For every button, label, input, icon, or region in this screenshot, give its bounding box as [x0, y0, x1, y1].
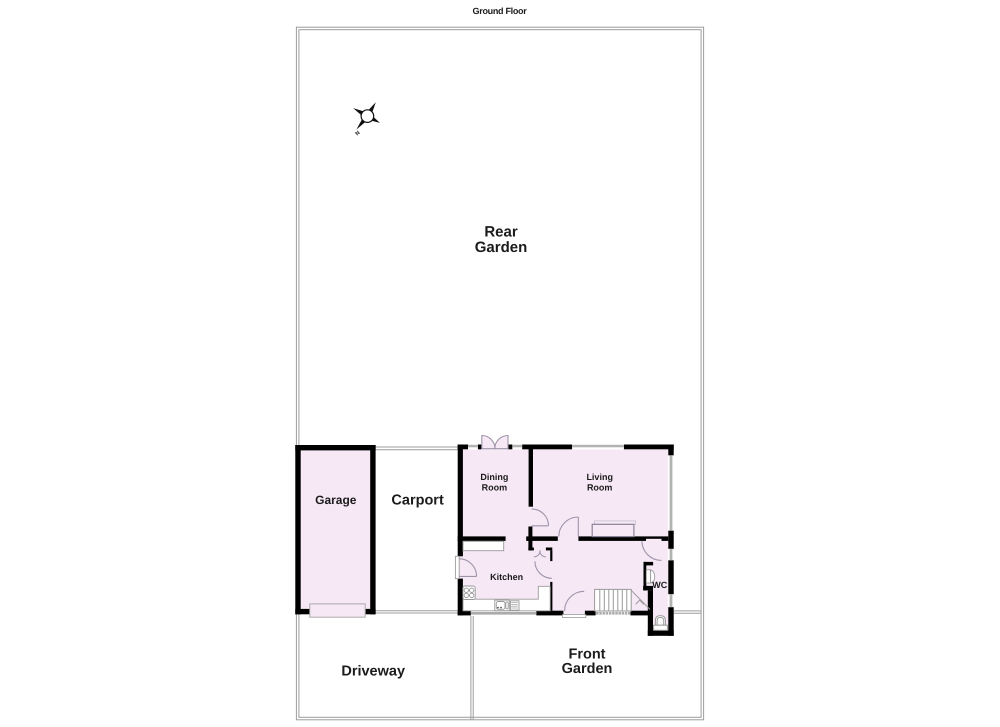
svg-text:Garage: Garage [315, 493, 357, 507]
svg-text:Garden: Garden [562, 661, 613, 677]
svg-text:Kitchen: Kitchen [490, 572, 523, 582]
svg-text:Living: Living [586, 472, 613, 482]
svg-text:WC: WC [652, 580, 667, 590]
svg-text:Garden: Garden [475, 239, 528, 256]
svg-text:Room: Room [587, 482, 613, 492]
svg-text:Carport: Carport [391, 493, 444, 509]
svg-text:Ground Floor: Ground Floor [473, 6, 528, 16]
svg-text:Dining: Dining [480, 472, 508, 482]
svg-text:Driveway: Driveway [341, 664, 405, 680]
svg-text:Room: Room [482, 482, 508, 492]
